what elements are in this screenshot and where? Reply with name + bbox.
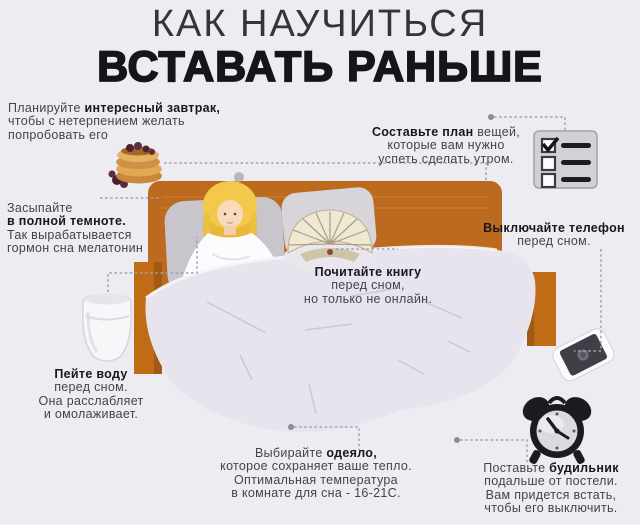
tip-phone-after: перед сном. [517, 234, 591, 248]
infographic-how-to-wake-up-earlier: КАК НАУЧИТЬСЯ ВСТАВАТЬ РАНЬШЕ [0, 0, 640, 525]
tip-alarm-after: подальше от постели. Вам придется встать… [484, 474, 618, 515]
smartphone-icon [550, 326, 617, 384]
pancakes-icon [109, 142, 163, 188]
tip-blanket-after: которое сохраняет ваше тепло. Оптимальна… [220, 459, 412, 500]
tip-plan-bold: Составьте план [372, 125, 474, 139]
book-clasp [327, 249, 333, 255]
tip-darkness-bold: в полной темноте. [7, 214, 126, 228]
tip-alarm: Поставьте будильник подальше от постели.… [462, 462, 640, 516]
connector-alarm [460, 440, 527, 463]
eye-left [224, 213, 227, 216]
glass-rim [85, 294, 129, 305]
headboard-finial [234, 172, 244, 182]
tip-darkness: Засыпайте в полной темноте. Так вырабаты… [7, 202, 179, 256]
water-glass-icon [83, 294, 132, 362]
tip-blanket-before: Выбирайте [255, 446, 326, 460]
tip-blanket-bold: одеяло, [326, 446, 377, 460]
tip-breakfast: Планируйте интересный завтрак, чтобы с н… [8, 102, 248, 142]
tip-darkness-after: Так вырабатывается гормон сна мелатонин [7, 228, 143, 255]
tip-darkness-before: Засыпайте [7, 201, 73, 215]
tip-water-bold: Пейте воду [54, 367, 127, 381]
neck [224, 226, 236, 235]
tip-alarm-before: Поставьте [483, 461, 549, 475]
tip-plan: Составьте план вещей, которые вам нужно … [354, 126, 538, 166]
tip-alarm-bold: будильник [549, 461, 619, 475]
tip-water: Пейте воду перед сном. Она расслабляет и… [16, 368, 166, 422]
tip-blanket: Выбирайте одеяло, которое сохраняет ваше… [188, 447, 444, 501]
tip-book-after: перед сном, но только не онлайн. [304, 278, 432, 305]
tip-breakfast-before: Планируйте [8, 101, 84, 115]
tip-book-bold: Почитайте книгу [315, 265, 422, 279]
checklist-icon [534, 131, 597, 188]
tip-phone: Выключайте телефон перед сном. [468, 222, 640, 249]
tip-phone-bold: Выключайте телефон [483, 221, 625, 235]
alarm-handle [549, 398, 565, 403]
tip-breakfast-after: чтобы с нетерпением желать попробовать е… [8, 114, 185, 141]
alarm-clock-icon [518, 392, 595, 465]
tip-water-after: перед сном. Она расслабляет и омолаживае… [38, 380, 143, 421]
tip-breakfast-bold: интересный завтрак, [84, 101, 220, 115]
alarm-center-pin [555, 429, 560, 434]
tip-book: Почитайте книгу перед сном, но только не… [282, 266, 454, 306]
eye-right [234, 213, 237, 216]
